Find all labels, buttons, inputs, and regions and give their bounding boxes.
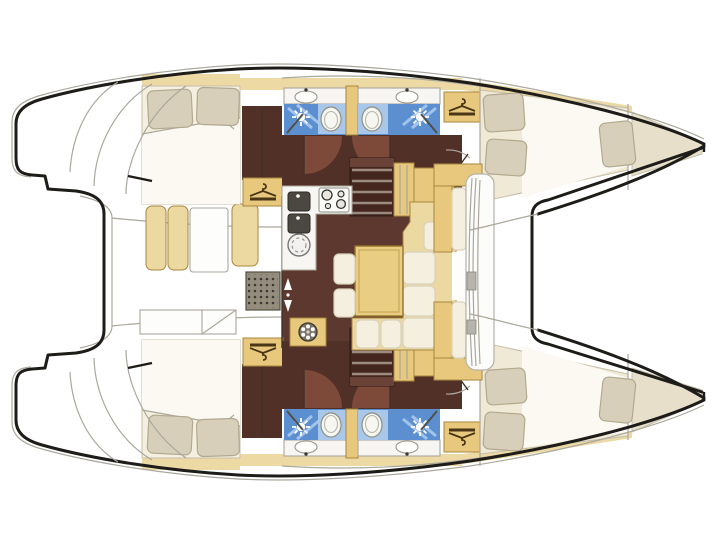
settee-cushion (403, 252, 435, 284)
stool (334, 254, 355, 284)
forward-cockpit (466, 174, 494, 370)
salon-table (355, 246, 403, 316)
aft-cockpit (80, 196, 282, 348)
hatch-latch (467, 320, 476, 334)
bench-cushion (232, 204, 258, 266)
sideboard (434, 186, 452, 252)
sideboard (434, 302, 452, 358)
bench-cushion (146, 206, 166, 270)
settee-cushion (403, 286, 435, 316)
platform-inner-line (80, 196, 112, 348)
bench-cushion (168, 206, 188, 270)
hatch-latch (467, 272, 476, 290)
floor-plan-drawing (0, 0, 720, 540)
fan-locker (290, 318, 326, 346)
stove-burners-icon (319, 188, 349, 212)
settee-cushion (381, 320, 401, 348)
settee-cushion (403, 318, 436, 348)
round-hatch-icon (288, 234, 310, 256)
cockpit-table (190, 208, 228, 272)
vent-fan-icon (299, 323, 317, 341)
seat-back-cushion (452, 188, 466, 250)
seat-back-cushion (452, 302, 466, 358)
catamaran-floor-plan (0, 0, 720, 540)
helm-bench (140, 310, 202, 334)
stool (334, 289, 355, 317)
slatted-grill (246, 272, 280, 310)
settee-cushion (356, 320, 379, 348)
